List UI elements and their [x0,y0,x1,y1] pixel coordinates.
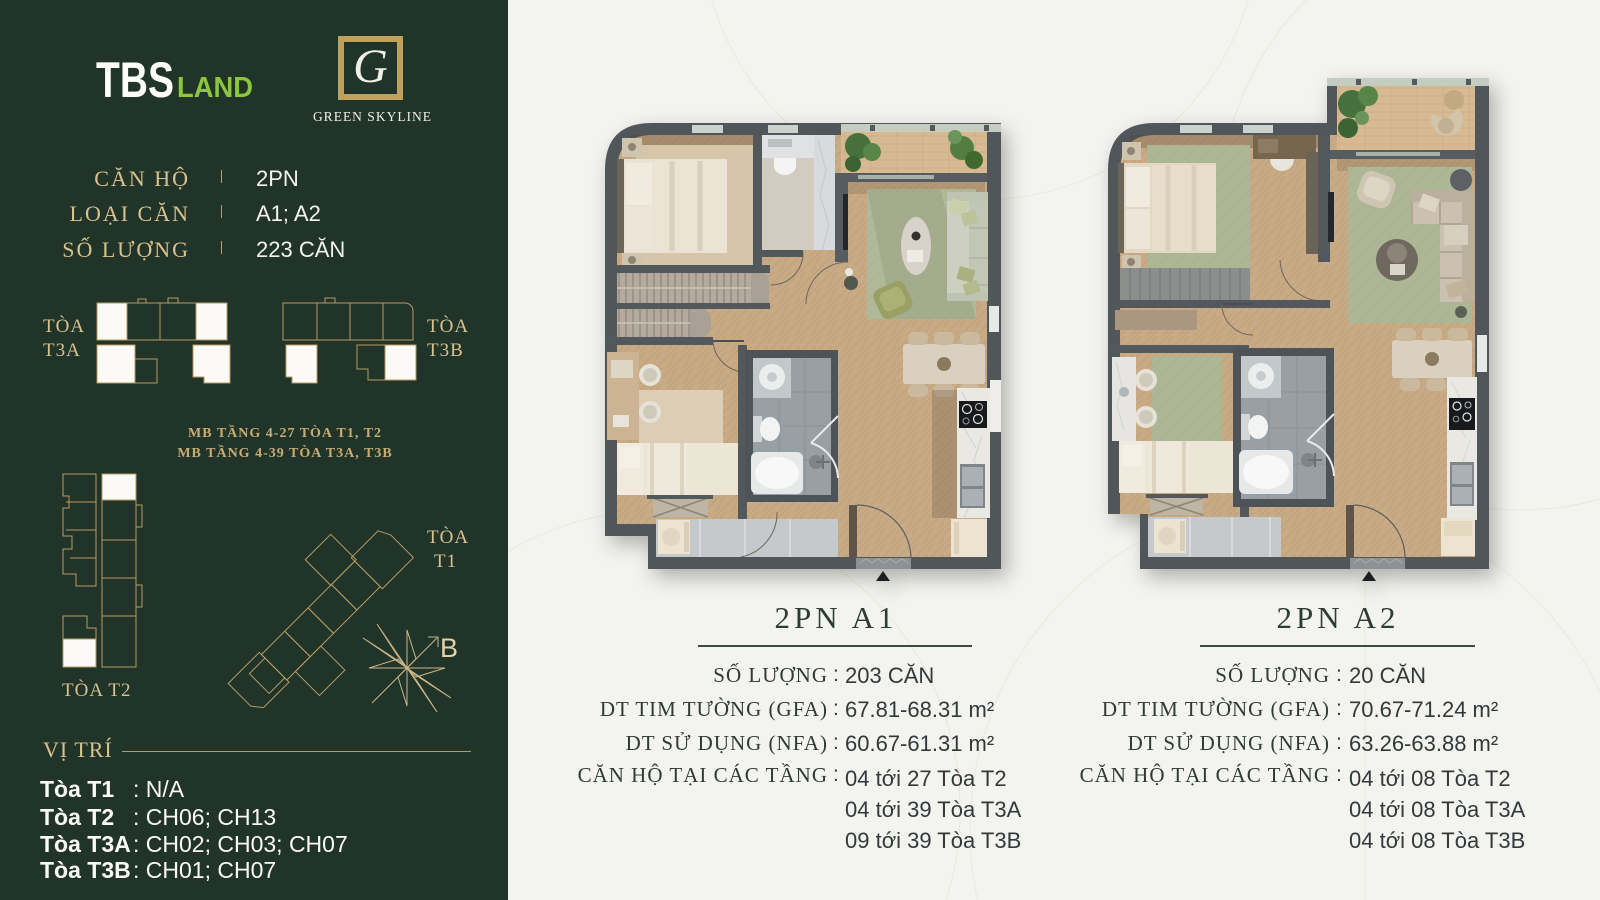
svg-text:TBS: TBS [96,56,174,104]
svg-text:T3A: T3A [43,340,81,361]
svg-text:TÒA: TÒA [427,526,469,548]
svg-text:TÒA T2: TÒA T2 [62,679,132,701]
svg-text:T3B: T3B [427,340,464,361]
svg-text:TÒA: TÒA [427,315,469,337]
svg-text:T1: T1 [434,551,457,572]
svg-text:LAND: LAND [177,72,253,104]
svg-text:TÒA: TÒA [43,315,85,337]
svg-text:B: B [440,633,458,663]
